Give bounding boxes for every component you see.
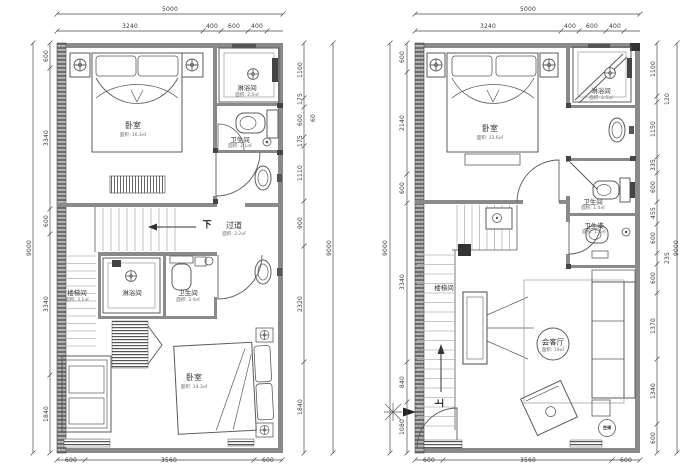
chevron-icon (148, 326, 162, 364)
door-leaf (570, 162, 597, 189)
shower-screen (575, 54, 627, 103)
dimension-line (405, 41, 410, 456)
toilet-cistern (620, 178, 630, 202)
ceiling-lamp-icon (74, 59, 86, 71)
tv-unit (463, 292, 487, 364)
lower-stair-hatch (112, 321, 148, 368)
sofa-back (624, 282, 635, 398)
stair-treads (103, 208, 175, 251)
vanity (486, 208, 512, 229)
washbasin (255, 166, 271, 190)
floor-plan-drawing (0, 0, 694, 473)
stair-edge (452, 205, 517, 430)
bed-bench (465, 154, 520, 165)
door-swing (569, 222, 601, 254)
towel-rail (272, 58, 278, 82)
wall (57, 448, 283, 453)
side-table (592, 400, 610, 416)
speaker-icon (260, 331, 269, 340)
washbasin (609, 118, 625, 142)
shower-head-icon (248, 69, 259, 80)
shower-head-icon (605, 68, 616, 79)
radiator (110, 176, 165, 193)
arrow-head-icon (438, 344, 445, 354)
towel-rail (627, 58, 632, 78)
floor-plan-canvas: 5000324040060040090006003340600334018401… (0, 0, 694, 473)
stair-post (458, 244, 471, 256)
armchair (521, 381, 578, 436)
door-swing (216, 152, 260, 196)
dimension-line (413, 12, 643, 17)
ceiling-lamp-icon (543, 59, 555, 71)
ceiling-lamp-icon (430, 59, 442, 71)
dimension-line (655, 41, 660, 456)
entry-arrow-icon (403, 408, 416, 417)
sink-counter (195, 257, 206, 266)
dimension-line (55, 12, 286, 17)
dimension-line (48, 41, 53, 456)
dimension-line (675, 41, 680, 456)
right-plan-linework (384, 43, 640, 453)
dimension-lines (31, 12, 680, 463)
stair-treads (67, 256, 96, 346)
wall (415, 448, 640, 453)
arrow-head-icon (148, 224, 157, 231)
door-swing (218, 124, 244, 150)
dimension-line (388, 41, 393, 456)
double-bed (174, 342, 256, 434)
dimension-line (413, 29, 641, 34)
sofa-seat (592, 282, 624, 398)
washbasin (255, 260, 271, 284)
speaker-icon (260, 426, 269, 435)
room-label-circle (537, 328, 569, 360)
dimension-line (331, 41, 336, 456)
dimension-line (55, 458, 285, 463)
dimension-line (302, 41, 307, 456)
double-bed (447, 53, 538, 152)
left-plan-linework (57, 43, 283, 453)
entry-plant-icon (384, 403, 402, 421)
ceiling-lamp-icon (186, 59, 198, 71)
shower-head-icon (126, 271, 137, 282)
toilet-cistern (267, 110, 278, 138)
window (232, 44, 256, 48)
dimension-line (31, 41, 36, 456)
hatched-wall (415, 43, 424, 453)
air-conditioner-circle (599, 420, 616, 437)
rug (524, 280, 624, 403)
tv-signal-lines (487, 297, 534, 359)
door-swing (517, 160, 559, 202)
dimension-line (413, 458, 643, 463)
shower-tray (103, 258, 160, 313)
toilet (172, 264, 191, 290)
wall (635, 43, 640, 453)
dimension-line (55, 29, 284, 34)
